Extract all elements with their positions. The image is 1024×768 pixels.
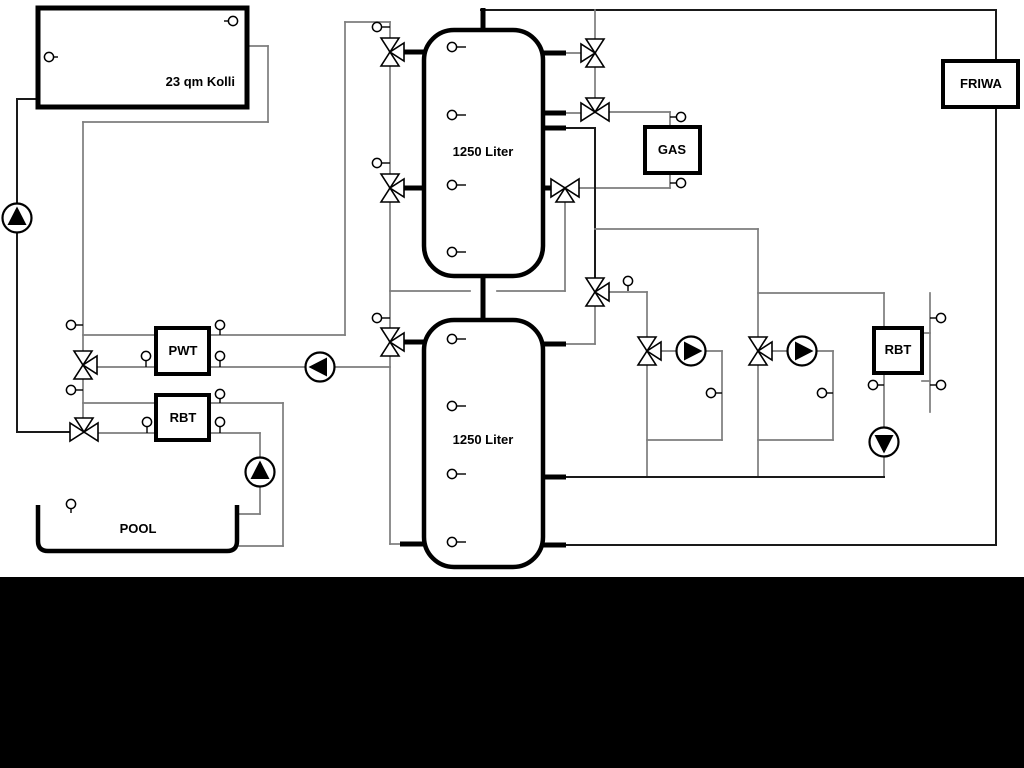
sensor-port-icon — [676, 112, 685, 121]
sensor-port-icon — [44, 52, 53, 61]
tank2-label: 1250 Liter — [453, 433, 514, 446]
sensor-port-icon — [447, 42, 456, 51]
sensor-port-icon — [66, 499, 75, 508]
sensor-port-icon — [447, 469, 456, 478]
sensor-port-icon — [66, 385, 75, 394]
sensor-port-icon — [215, 417, 224, 426]
sensor-port-icon — [215, 351, 224, 360]
sensor-port-icon — [447, 247, 456, 256]
sensor-port-icon — [706, 388, 715, 397]
sensor-port-icon — [372, 158, 381, 167]
bottom-black-bar — [0, 577, 1024, 768]
sensor-port-icon — [868, 380, 877, 389]
collector-label: 23 qm Kolli — [95, 75, 235, 88]
sensor-port-icon — [623, 276, 632, 285]
sensor-port-icon — [447, 401, 456, 410]
sensor-port-icon — [228, 16, 237, 25]
sensor-port-icon — [447, 180, 456, 189]
friwa-label: FRIWA — [960, 77, 1002, 90]
sensor-port-icon — [447, 537, 456, 546]
sensor-port-icon — [447, 334, 456, 343]
sensor-port-icon — [215, 389, 224, 398]
sensor-port-icon — [936, 313, 945, 322]
sensor-port-icon — [372, 22, 381, 31]
tank1-label: 1250 Liter — [453, 145, 514, 158]
sensor-port-icon — [66, 320, 75, 329]
sensor-port-icon — [141, 351, 150, 360]
pwt-label: PWT — [169, 344, 198, 357]
schematic-stage: 23 qm Kolli 1250 Liter 1250 Liter PWT RB… — [0, 0, 1024, 768]
rbt-left-label: RBT — [170, 411, 197, 424]
sensor-port-icon — [936, 380, 945, 389]
gas-label: GAS — [658, 143, 686, 156]
sensor-port-icon — [215, 320, 224, 329]
collector-box — [38, 8, 247, 107]
sensor-port-icon — [142, 417, 151, 426]
pool-label: POOL — [120, 522, 157, 535]
sensor-port-icon — [447, 110, 456, 119]
rbt-right-label: RBT — [885, 343, 912, 356]
sensor-port-icon — [817, 388, 826, 397]
sensor-port-icon — [676, 178, 685, 187]
sensor-port-icon — [372, 313, 381, 322]
